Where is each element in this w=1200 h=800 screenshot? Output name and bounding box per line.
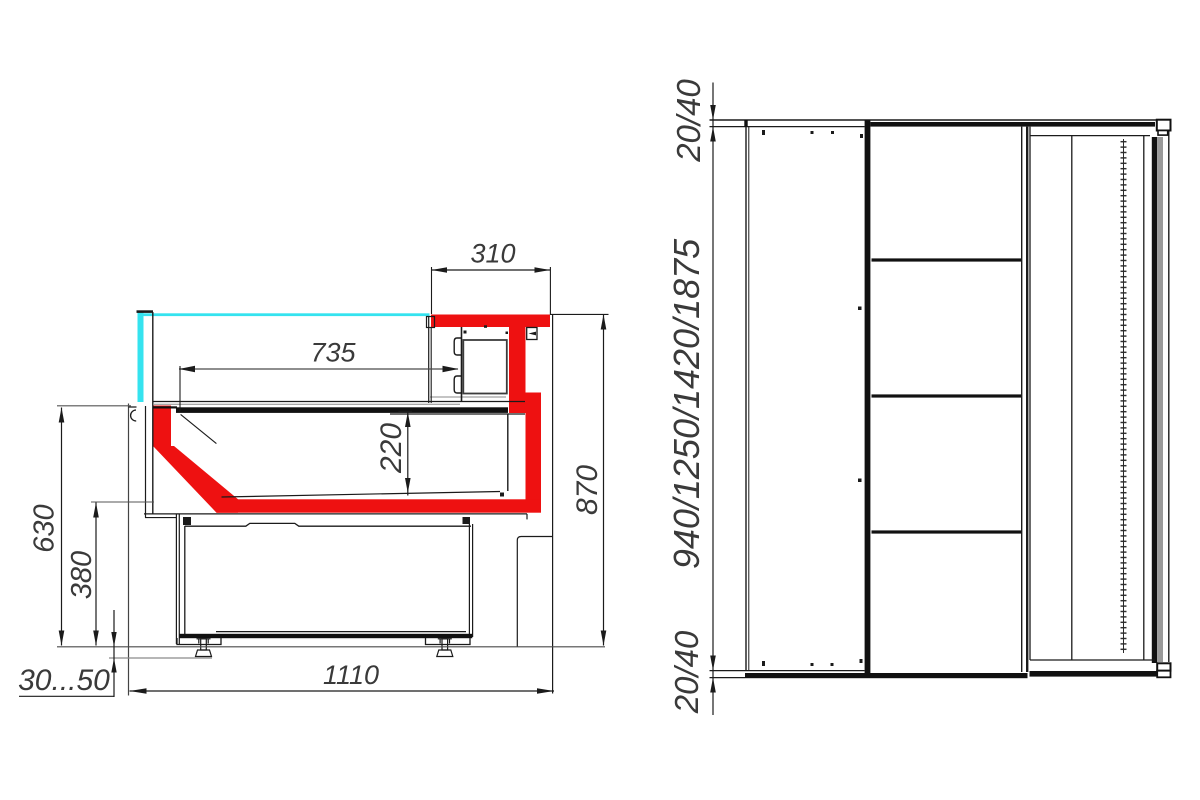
svg-text:20/40: 20/40: [668, 630, 705, 714]
svg-text:1110: 1110: [323, 660, 379, 690]
svg-text:380: 380: [66, 551, 98, 599]
svg-text:630: 630: [29, 504, 61, 552]
svg-text:940/1250/1420/1875: 940/1250/1420/1875: [666, 238, 707, 569]
svg-text:220: 220: [375, 423, 408, 474]
svg-text:20/40: 20/40: [670, 79, 707, 163]
svg-text:735: 735: [310, 338, 356, 368]
svg-text:30...50: 30...50: [18, 664, 110, 697]
svg-text:310: 310: [470, 239, 515, 269]
svg-text:870: 870: [571, 465, 604, 515]
